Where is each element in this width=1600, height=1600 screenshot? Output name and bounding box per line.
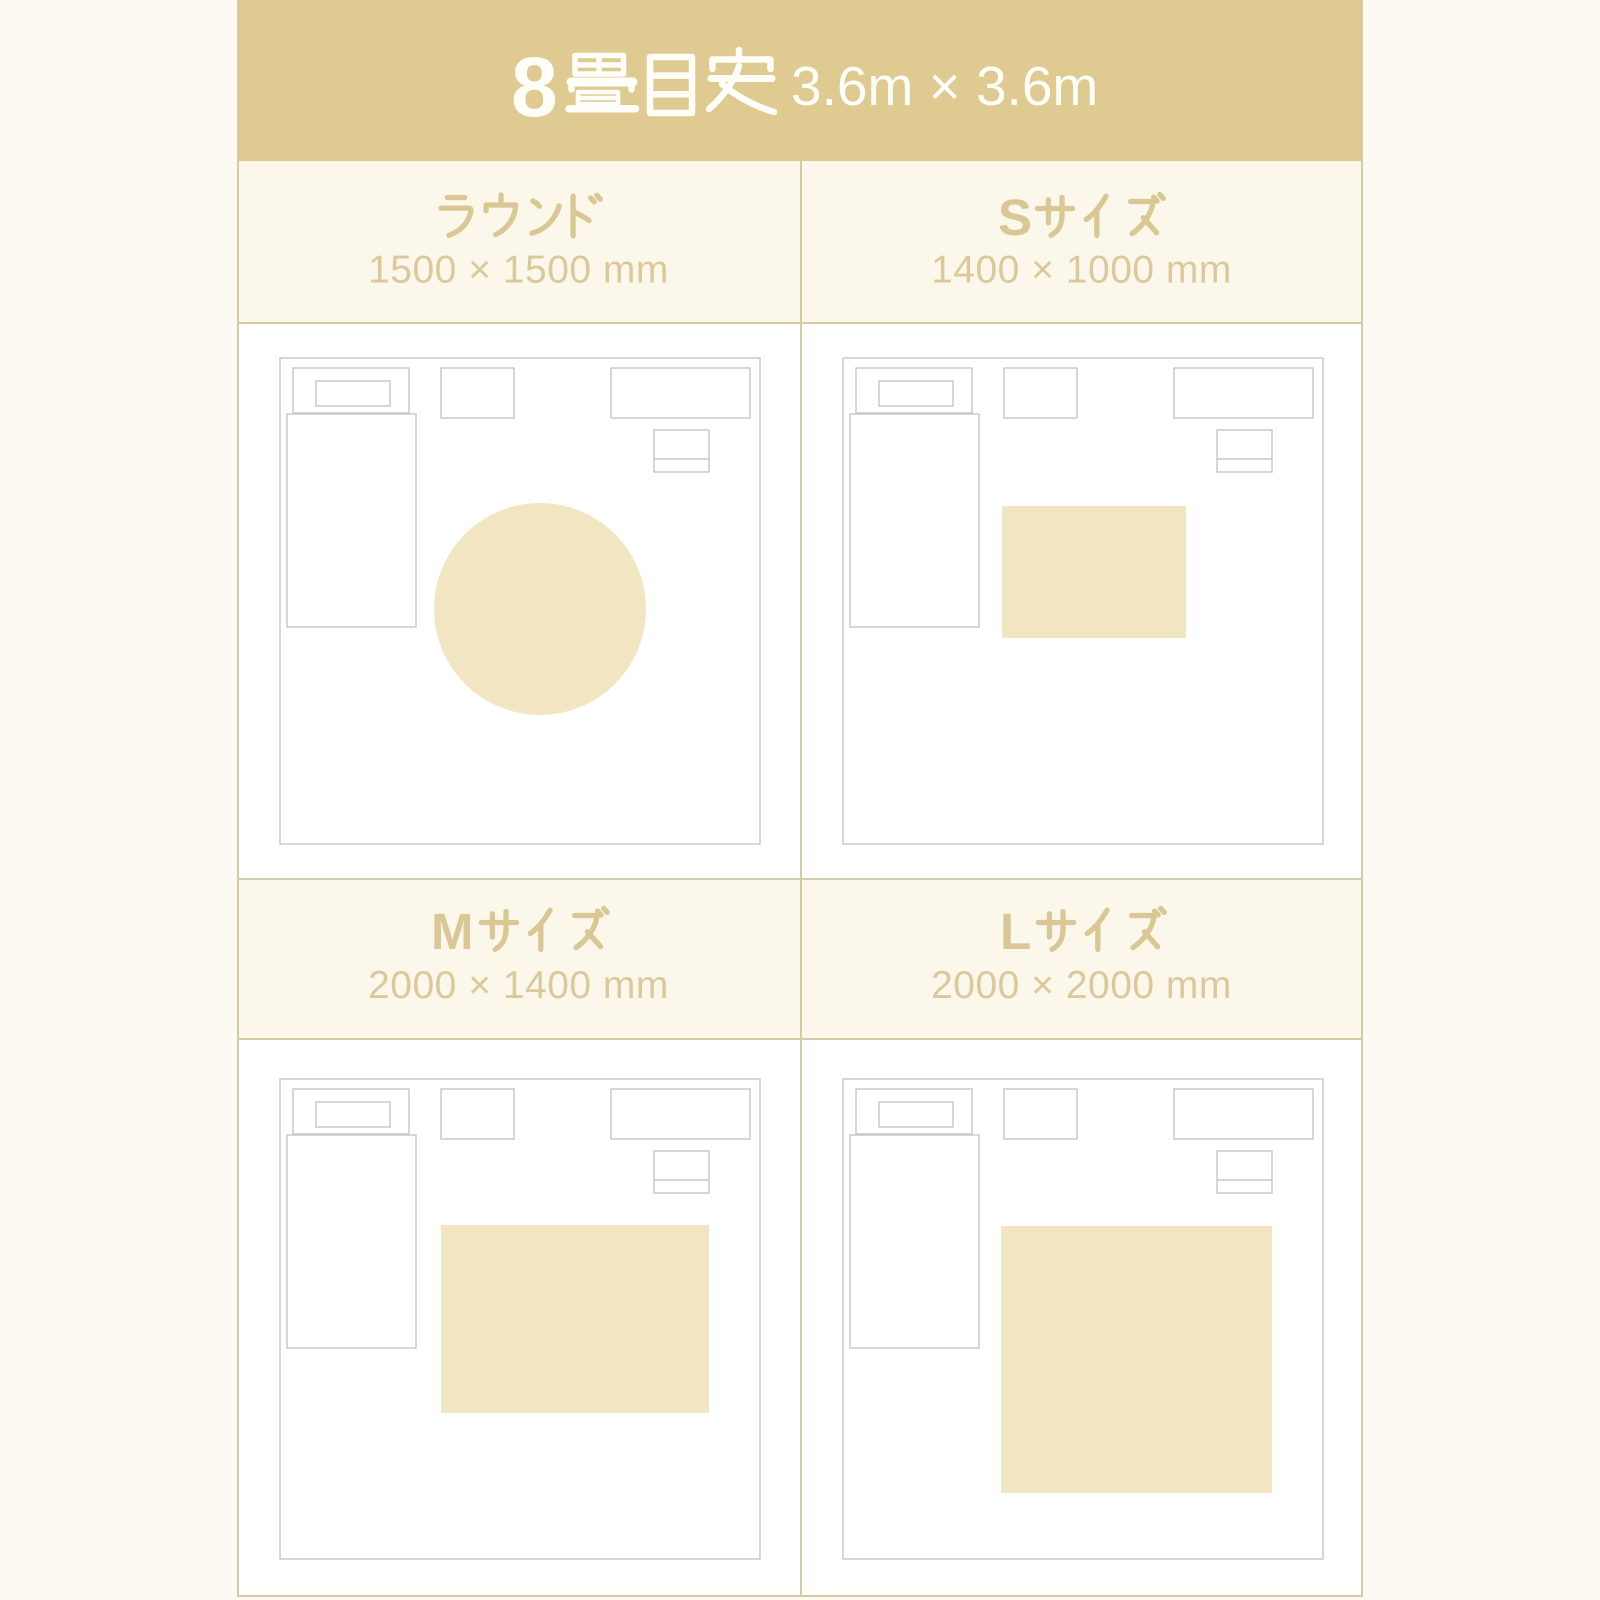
svg-text:L: L (1000, 903, 1031, 960)
svg-text:2000 × 2000 mm: 2000 × 2000 mm (931, 964, 1232, 1007)
svg-text:8: 8 (511, 40, 558, 134)
svg-text:1500 × 1500 mm: 1500 × 1500 mm (368, 249, 669, 292)
svg-text:S: S (998, 189, 1032, 246)
svg-text:M: M (431, 903, 473, 960)
svg-text:1400 × 1000 mm: 1400 × 1000 mm (931, 249, 1232, 292)
svg-text:2000 × 1400 mm: 2000 × 1400 mm (368, 964, 669, 1007)
svg-text:3.6m × 3.6m: 3.6m × 3.6m (791, 55, 1098, 117)
